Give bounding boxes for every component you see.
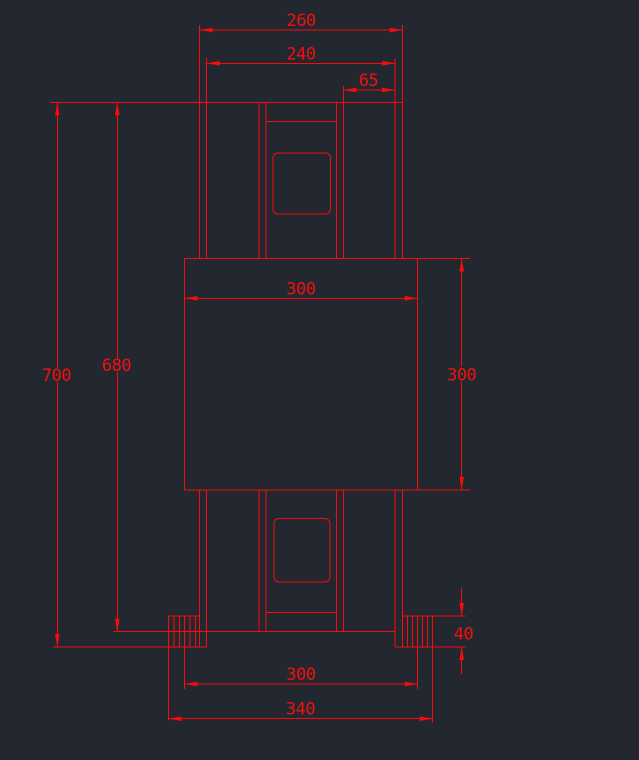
dimension-text: 260 (287, 11, 316, 31)
cad-svg: 2602406570068030030040300340 (0, 0, 639, 760)
dimension-text: 240 (286, 44, 315, 64)
dimension-text: 300 (286, 665, 315, 685)
dimension-text: 300 (286, 279, 315, 299)
dimension-text: 40 (454, 625, 474, 645)
model-space-background (0, 0, 639, 760)
dimension-text: 680 (102, 356, 131, 376)
dimension-text: 65 (359, 71, 378, 91)
dimension-text: 340 (286, 700, 315, 720)
cad-drawing-canvas[interactable]: 2602406570068030030040300340 (0, 0, 639, 760)
dimension-text: 700 (42, 366, 71, 386)
dimension-text: 300 (447, 366, 476, 386)
